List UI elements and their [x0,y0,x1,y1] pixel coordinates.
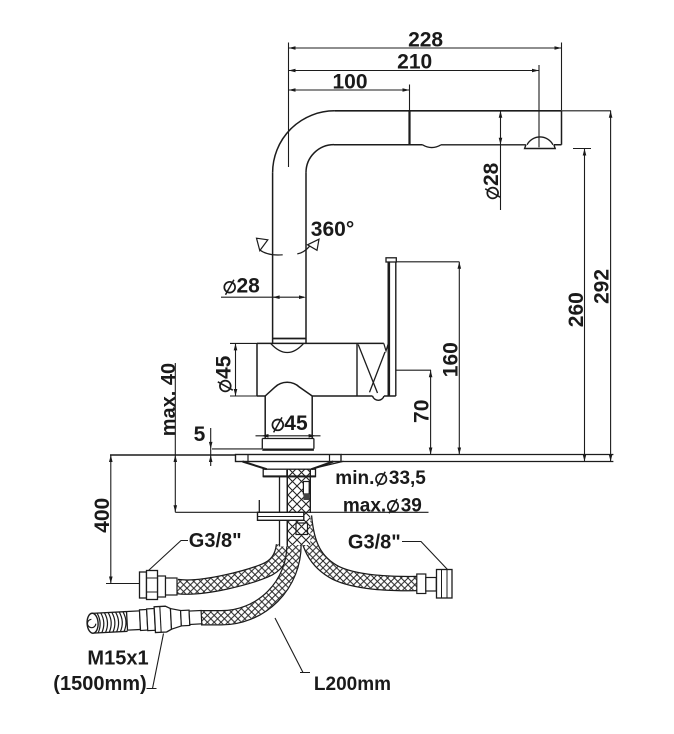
svg-text:28: 28 [480,162,503,186]
svg-text:max.: max. [343,495,386,516]
svg-text:70: 70 [411,400,434,423]
svg-text:M15x1: M15x1 [87,648,148,670]
svg-text:260: 260 [565,292,588,327]
svg-text:39: 39 [401,495,422,516]
svg-text:G3/8": G3/8" [189,530,242,552]
svg-text:28: 28 [237,275,261,298]
svg-text:33,5: 33,5 [389,468,426,489]
svg-text:L200mm: L200mm [314,674,391,695]
svg-text:(1500mm): (1500mm) [53,673,146,695]
svg-text:360°: 360° [311,218,354,241]
svg-text:G3/8": G3/8" [348,532,401,554]
svg-text:max. 40: max. 40 [158,363,180,436]
svg-text:160: 160 [439,342,462,377]
svg-text:min.: min. [335,468,374,489]
svg-text:5: 5 [194,423,206,446]
svg-text:100: 100 [332,71,367,94]
svg-text:228: 228 [408,29,443,52]
svg-text:400: 400 [91,498,114,533]
svg-text:45: 45 [213,355,236,379]
svg-text:292: 292 [591,269,614,304]
svg-text:45: 45 [284,412,308,435]
svg-text:210: 210 [397,51,432,74]
